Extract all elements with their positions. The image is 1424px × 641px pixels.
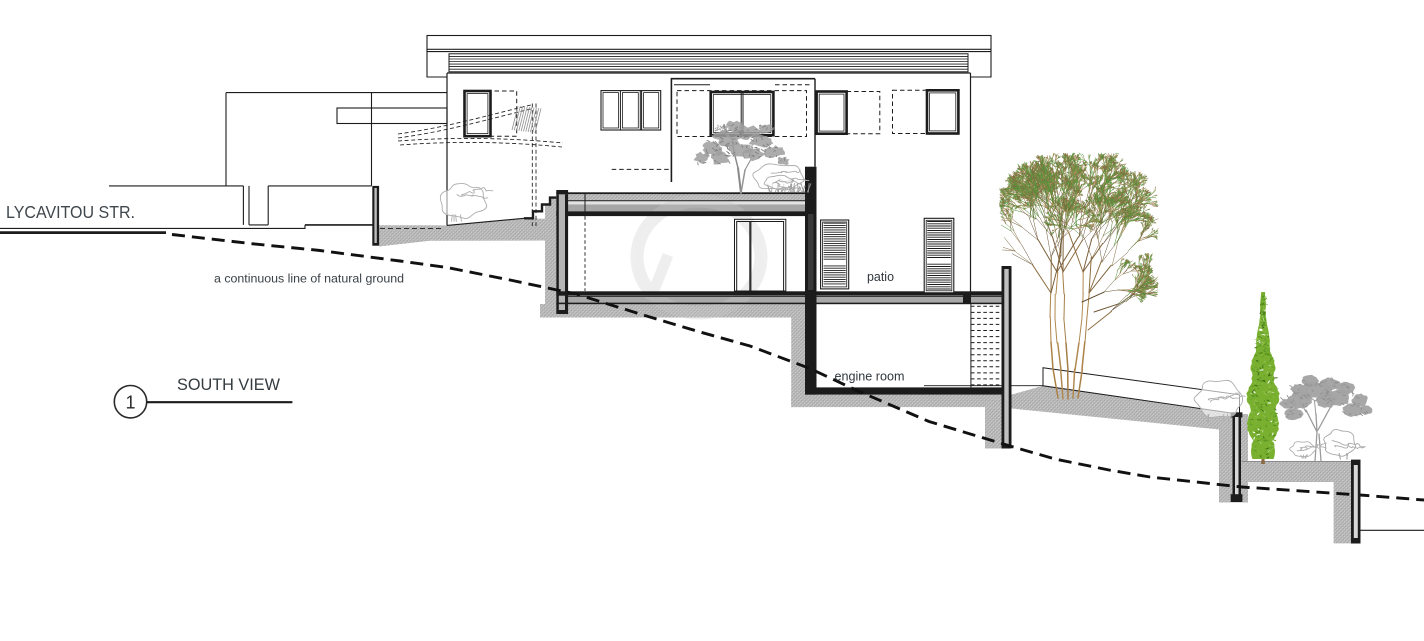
svg-text:1: 1 (125, 392, 135, 412)
svg-text:patio: patio (867, 269, 894, 284)
svg-text:engine room: engine room (835, 369, 905, 384)
svg-text:a continuous line of natural g: a continuous line of natural ground (214, 272, 404, 286)
svg-text:SOUTH VIEW: SOUTH VIEW (177, 376, 281, 394)
svg-text:LYCAVITOU STR.: LYCAVITOU STR. (6, 202, 135, 222)
